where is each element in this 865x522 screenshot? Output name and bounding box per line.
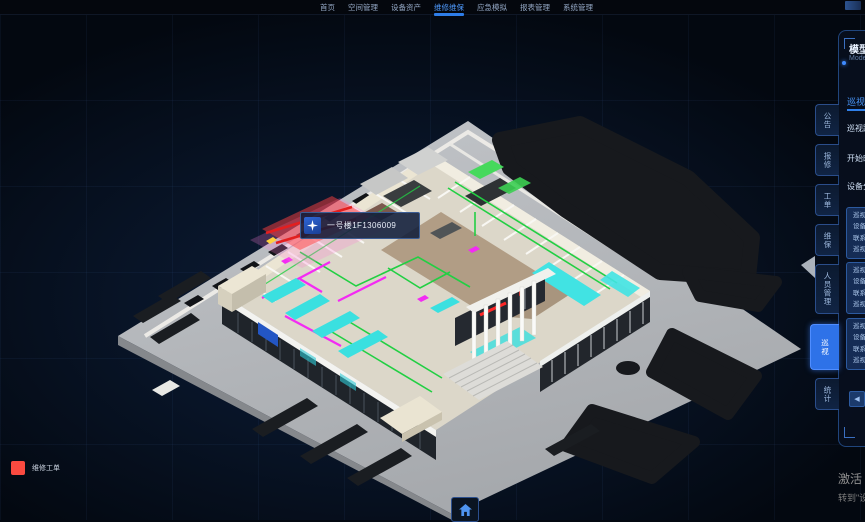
panel-corner-bracket-bottom (844, 427, 855, 438)
card-line: 巡视状态 (853, 246, 865, 254)
main-menu: 首页 空间管理 设备资产 维修维保 应急模拟 报表管理 系统管理 (320, 0, 593, 14)
nav-item-space[interactable]: 空间管理 (348, 2, 378, 13)
model-tooltip[interactable]: 一号楼1F1306009 (300, 212, 420, 239)
tab-work-orders[interactable]: 工单 (815, 184, 839, 216)
nav-item-emergency[interactable]: 应急模拟 (477, 2, 507, 13)
panel-tab-patrol-plan[interactable]: 巡视计划 (847, 95, 865, 108)
top-navbar: 首页 空间管理 设备资产 维修维保 应急模拟 报表管理 系统管理 (0, 0, 865, 15)
panel-accent-dot (842, 61, 846, 65)
building-model-canvas[interactable] (0, 0, 865, 520)
patrol-card[interactable]: 巡视点位 设备名称 联系电话 巡视状态 (846, 262, 865, 314)
nav-item-home[interactable]: 首页 (320, 2, 335, 13)
tab-maintenance[interactable]: 维保 (815, 224, 839, 256)
device-marker-icon (304, 217, 321, 234)
card-line: 巡视点位 (853, 267, 865, 275)
tab-announcements[interactable]: 公告 (815, 104, 839, 136)
card-line: 设备名称 (853, 223, 865, 231)
reset-view-button[interactable] (451, 497, 479, 522)
card-line: 巡视点位 (853, 323, 865, 331)
card-line: 设备名称 (853, 278, 865, 286)
tab-statistics[interactable]: 统计 (815, 378, 839, 410)
prev-page-button[interactable]: ◀ (849, 391, 865, 407)
repair-order-label: 维修工单 (32, 463, 60, 473)
tab-personnel[interactable]: 人员管理 (815, 264, 839, 314)
card-line: 巡视状态 (853, 357, 865, 365)
nav-item-system[interactable]: 系统管理 (563, 2, 593, 13)
card-line: 巡视状态 (853, 301, 865, 309)
nav-item-assets[interactable]: 设备资产 (391, 2, 421, 13)
watermark-line1: 激活 Windows (838, 470, 865, 487)
panel-title: 模型巡视 (849, 41, 865, 56)
topbar-widget-partial (845, 1, 861, 10)
repair-order-swatch (11, 461, 25, 475)
tab-repair-report[interactable]: 报修 (815, 144, 839, 176)
field-start-time[interactable]: 开始时间 (847, 153, 865, 164)
patrol-panel: 模型巡视 Model Patrol 巡视计划 巡视路线 开始时间 设备分类 巡视… (838, 30, 865, 447)
card-line: 联系电话 (853, 346, 865, 354)
legend-repair-order: 维修工单 (11, 461, 60, 475)
tab-patrol[interactable]: 巡视 (810, 324, 839, 370)
nav-item-reports[interactable]: 报表管理 (520, 2, 550, 13)
card-line: 巡视点位 (853, 212, 865, 220)
card-line: 联系电话 (853, 235, 865, 243)
patrol-card[interactable]: 巡视点位 设备名称 联系电话 巡视状态 (846, 318, 865, 370)
right-tab-strip: 公告 报修 工单 维保 人员管理 巡视 统计 (812, 104, 842, 418)
panel-collapse-handle[interactable] (801, 256, 815, 278)
panel-tab-underline (847, 109, 865, 111)
tooltip-label: 一号楼1F1306009 (327, 220, 396, 231)
field-patrol-route[interactable]: 巡视路线 (847, 123, 865, 134)
field-device-category[interactable]: 设备分类 (847, 181, 865, 192)
patrol-card[interactable]: 巡视点位 设备名称 联系电话 巡视状态 (846, 207, 865, 259)
card-line: 联系电话 (853, 290, 865, 298)
panel-subtitle: Model Patrol (849, 55, 865, 62)
nav-item-maintenance[interactable]: 维修维保 (434, 2, 464, 13)
windows-activation-watermark: 激活 Windows 转到"设置"以激活 Windows。 (838, 470, 865, 504)
watermark-line2: 转到"设置"以激活 Windows。 (838, 491, 865, 504)
home-icon (459, 504, 472, 516)
card-line: 设备名称 (853, 334, 865, 342)
